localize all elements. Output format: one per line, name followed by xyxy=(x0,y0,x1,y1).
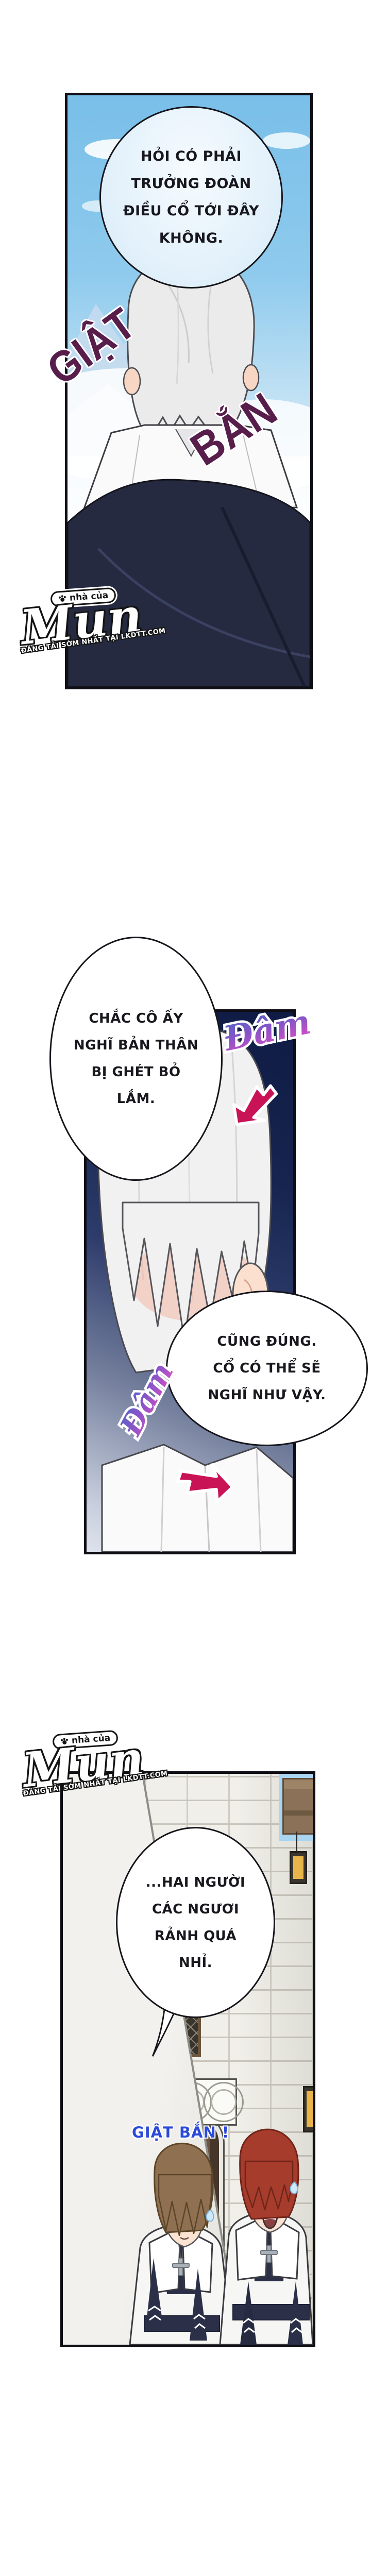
webtoon-page: HỎI CÓ PHẢI TRƯỞNG ĐOÀN ĐIỀU CỔ TỚI ĐÂY … xyxy=(0,0,371,2576)
bubble-line: ĐIỀU CỔ TỚI ĐÂY xyxy=(123,204,259,218)
bubble-line: BỊ GHÉT BỎ xyxy=(91,1065,180,1079)
translator-logo: nhà của Mun ĐĂNG TẢI SỚM NHẤT TẠI LKDTT.… xyxy=(21,589,134,647)
bubble-line: RẢNH QUÁ xyxy=(155,1929,237,1943)
bubble-line: CŨNG ĐÚNG. xyxy=(217,1335,316,1348)
speech-bubble-2a: CHẮC CÔ ẤY NGHĨ BẢN THÂN BỊ GHÉT BỎ LẮM. xyxy=(49,937,223,1181)
bubble-line: CỔ CÓ THỂ SẼ xyxy=(213,1362,321,1375)
bubble-line: NGHĨ BẢN THÂN xyxy=(74,1039,198,1052)
speech-bubble-1: HỎI CÓ PHẢI TRƯỞNG ĐOÀN ĐIỀU CỔ TỚI ĐÂY … xyxy=(99,106,283,289)
bubble-line: KHÔNG. xyxy=(159,231,224,245)
bubble-line: NGHĨ NHƯ VẬY. xyxy=(208,1388,326,1402)
bubble-line: NHỈ. xyxy=(179,1956,212,1970)
ear xyxy=(124,368,140,395)
bubble-line: CHẮC CÔ ẤY xyxy=(89,1012,183,1025)
pink-arrow-right-icon xyxy=(176,1451,230,1513)
translator-logo: nhà của Mun ĐĂNG TẢI SỚM NHẤT TẠI LKDTT.… xyxy=(23,1732,136,1790)
bubble-line: TRƯỞNG ĐOÀN xyxy=(131,177,251,191)
bubble-line: ...HAI NGƯỜI xyxy=(146,1876,245,1889)
bubble-line: HỎI CÓ PHẢI xyxy=(141,149,242,163)
bubble-line: LẮM. xyxy=(117,1092,155,1106)
speech-bubble-2b: CŨNG ĐÚNG. CỔ CÓ THỂ SẼ NGHĨ NHƯ VẬY. xyxy=(166,1291,368,1446)
pink-arrow-down-left-icon xyxy=(232,1080,281,1129)
speech-bubble-3: ...HAI NGƯỜI CÁC NGƯƠI RẢNH QUÁ NHỈ. xyxy=(116,1827,275,2018)
bubble-line: CÁC NGƯƠI xyxy=(152,1903,239,1916)
dark-coat xyxy=(68,480,310,687)
sfx-giat-ban: GIẬT BẮN ! xyxy=(132,2124,229,2141)
